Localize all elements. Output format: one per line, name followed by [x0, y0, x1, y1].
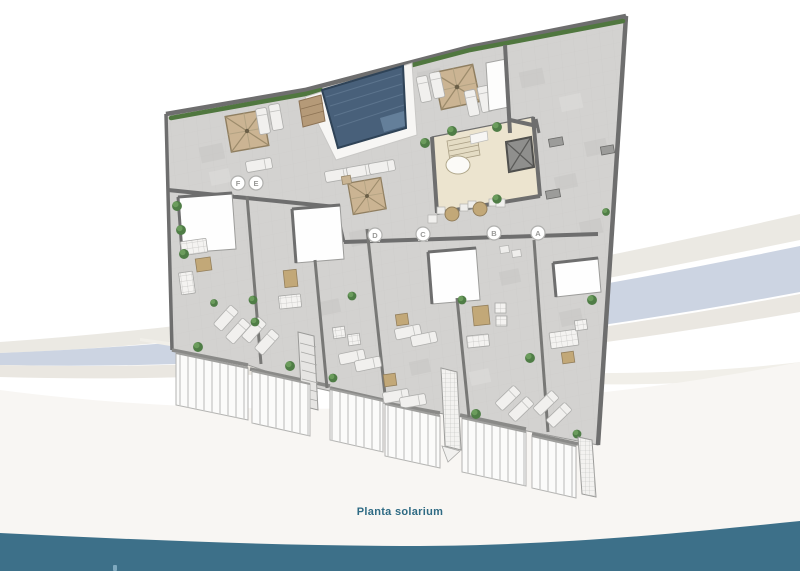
chair: [437, 207, 445, 214]
table-round: [445, 207, 459, 221]
svg-text:D: D: [372, 231, 378, 240]
solarium-floorplan-page: F E D C B A Planta solarium: [0, 0, 800, 571]
coffee-table: [195, 257, 212, 272]
railing-segment: [532, 436, 576, 498]
chair: [332, 326, 345, 339]
spa-tub: [446, 156, 470, 174]
chair: [512, 249, 522, 257]
floorplan-drawing: F E D C B A: [0, 0, 800, 571]
sofa: [466, 334, 489, 348]
svg-text:C: C: [420, 230, 426, 239]
side-table: [341, 175, 351, 184]
svg-text:A: A: [535, 229, 541, 238]
logo-mark: [113, 565, 117, 571]
ac-unit: [600, 145, 614, 155]
coffee-table: [472, 305, 490, 326]
svg-text:B: B: [491, 229, 497, 238]
chair: [496, 316, 507, 326]
skylight: [292, 205, 344, 263]
chair: [347, 333, 360, 346]
coffee-table: [383, 373, 397, 387]
table-square: [428, 215, 437, 223]
sofa: [549, 329, 579, 349]
pool-wood-steps: [299, 95, 325, 127]
marker-f: F: [231, 176, 245, 190]
marker-a: A: [531, 226, 545, 240]
marker-d: D: [368, 228, 382, 242]
coffee-table: [561, 351, 574, 364]
marker-c: C: [416, 227, 430, 241]
chair: [500, 245, 510, 253]
marker-e: E: [249, 176, 263, 190]
chair: [574, 319, 587, 331]
svg-text:E: E: [253, 179, 258, 188]
svg-text:F: F: [236, 179, 241, 188]
plan-caption: Planta solarium: [0, 506, 800, 518]
sofa: [278, 294, 301, 309]
coffee-table: [395, 313, 408, 326]
parasol: [348, 177, 386, 214]
sofa: [179, 271, 196, 295]
skylight: [553, 258, 601, 297]
coffee-table: [283, 269, 298, 287]
chair: [460, 204, 468, 211]
chair: [495, 303, 506, 313]
marker-b: B: [487, 226, 501, 240]
table-round: [473, 202, 487, 216]
skylight: [428, 248, 480, 304]
